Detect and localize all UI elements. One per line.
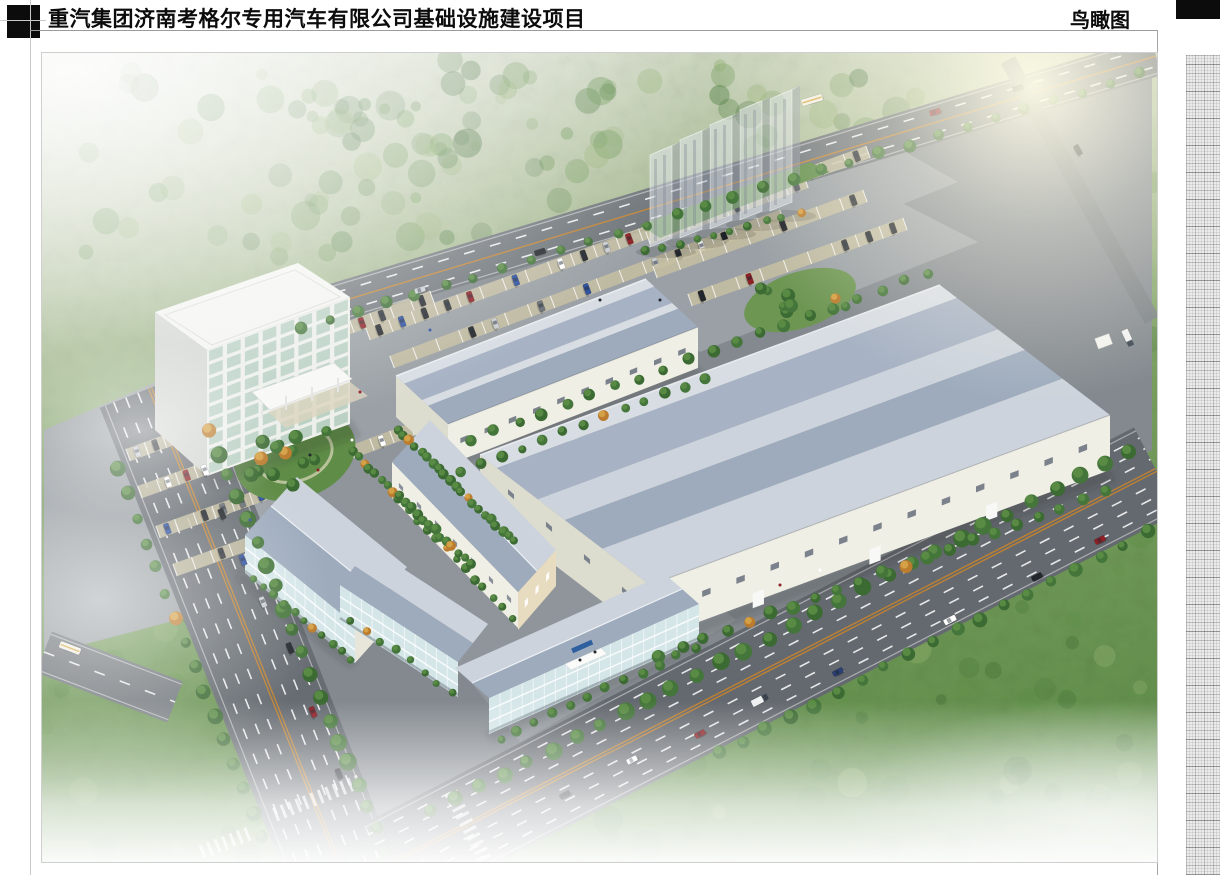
register-line-vertical — [30, 0, 31, 875]
aerial-rendering — [42, 53, 1157, 862]
aerial-rendering-frame — [42, 53, 1157, 862]
title-rule — [30, 30, 1157, 31]
sheet-frame-line — [1157, 30, 1158, 875]
corner-mark-topright — [1176, 0, 1220, 19]
film-strip-edge — [1186, 55, 1220, 875]
view-label: 鸟瞰图 — [1030, 4, 1130, 33]
drawing-sheet: 重汽集团济南考格尔专用汽车有限公司基础设施建设项目 鸟瞰图 — [0, 0, 1220, 875]
project-title: 重汽集团济南考格尔专用汽车有限公司基础设施建设项目 — [48, 3, 586, 33]
atmosphere-haze — [42, 53, 1157, 862]
register-line-horizontal — [0, 20, 46, 21]
corner-mark-topleft — [7, 5, 40, 38]
